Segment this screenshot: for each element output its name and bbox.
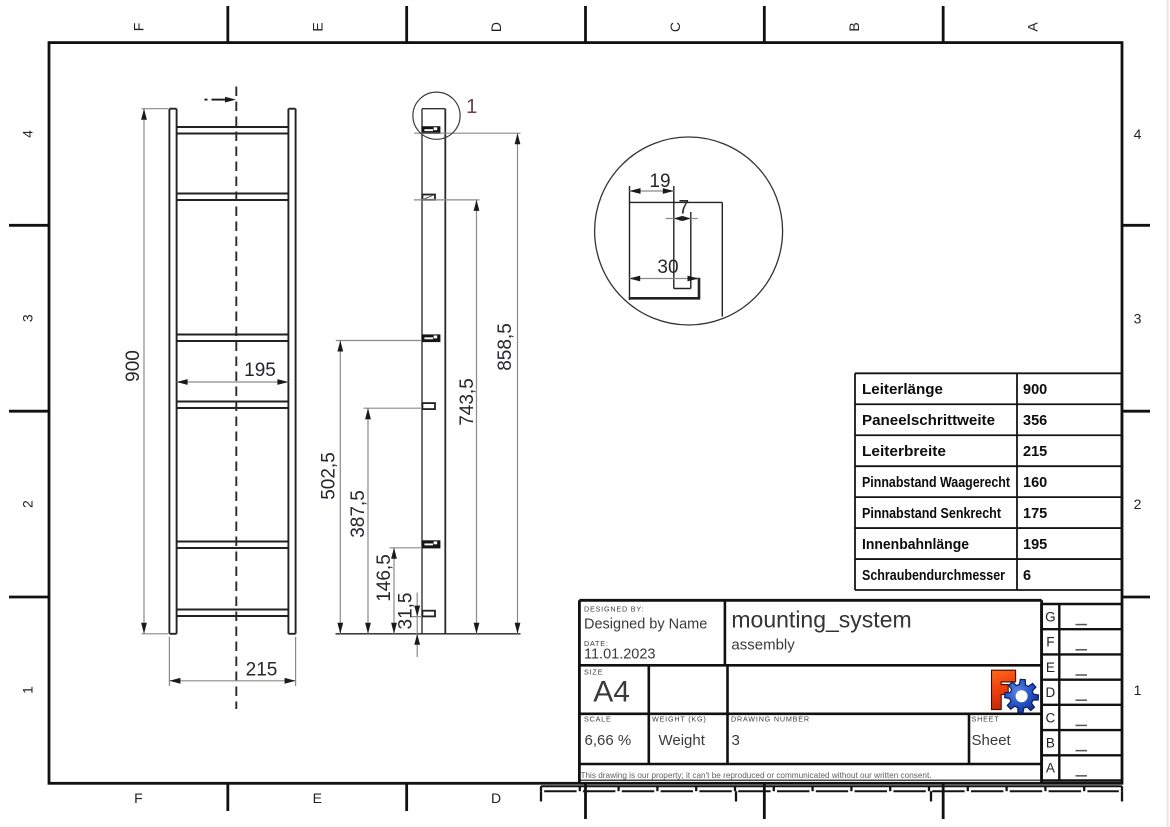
svg-text:E: E	[309, 22, 325, 31]
svg-text:1: 1	[1134, 682, 1142, 698]
svg-text:Leiterbreite: Leiterbreite	[862, 443, 946, 460]
svg-text:31,5: 31,5	[396, 593, 417, 630]
svg-text:7: 7	[679, 198, 690, 219]
svg-text:146,5: 146,5	[374, 554, 395, 602]
svg-text:E: E	[313, 790, 322, 806]
svg-text:6: 6	[1023, 568, 1031, 584]
svg-text:356: 356	[1023, 413, 1047, 429]
svg-text:DRAWING NUMBER: DRAWING NUMBER	[731, 714, 810, 723]
svg-text:F: F	[134, 790, 143, 806]
svg-text:4: 4	[1134, 126, 1142, 142]
svg-text:Pinnabstand Senkrecht: Pinnabstand Senkrecht	[862, 505, 1001, 522]
svg-text:SCALE: SCALE	[584, 714, 612, 723]
svg-text:900: 900	[123, 350, 144, 382]
svg-text:A: A	[1046, 761, 1055, 776]
svg-text:Designed by Name: Designed by Name	[584, 617, 707, 633]
svg-text:F: F	[130, 23, 146, 32]
svg-text:11.01.2023: 11.01.2023	[584, 647, 656, 663]
svg-text:Innenbahnlänge: Innenbahnlänge	[862, 536, 969, 553]
svg-text:195: 195	[244, 360, 276, 381]
svg-text:215: 215	[1023, 444, 1047, 460]
svg-text:502,5: 502,5	[318, 452, 339, 500]
svg-text:Sheet: Sheet	[972, 732, 1012, 749]
svg-text:175: 175	[1023, 506, 1047, 522]
svg-text:3: 3	[1134, 310, 1142, 326]
svg-text:mounting_system: mounting_system	[731, 606, 911, 632]
svg-text:G: G	[1045, 609, 1056, 624]
svg-text:D: D	[488, 22, 504, 32]
svg-text:C: C	[667, 22, 683, 32]
svg-text:215: 215	[246, 659, 278, 680]
svg-text:This drawing is our property;: This drawing is our property; it can't b…	[581, 770, 932, 780]
svg-text:19: 19	[649, 171, 670, 192]
svg-text:Schraubendurchmesser: Schraubendurchmesser	[862, 567, 1005, 584]
svg-text:1: 1	[20, 686, 36, 694]
svg-text:assembly: assembly	[731, 636, 795, 653]
svg-text:DESIGNED BY:: DESIGNED BY:	[584, 605, 644, 614]
svg-text:160: 160	[1023, 475, 1047, 491]
svg-text:A: A	[1025, 22, 1041, 32]
svg-text:2: 2	[1134, 496, 1142, 512]
svg-text:858,5: 858,5	[495, 323, 516, 371]
svg-text:2: 2	[20, 500, 36, 508]
svg-text:E: E	[1046, 660, 1055, 675]
svg-text:A4: A4	[593, 676, 630, 709]
svg-text:743,5: 743,5	[457, 378, 478, 426]
svg-text:Weight: Weight	[659, 732, 706, 749]
svg-text:Pinnabstand Waagerecht: Pinnabstand Waagerecht	[862, 474, 1010, 491]
svg-text:Leiterlänge: Leiterlänge	[862, 381, 943, 398]
svg-text:3: 3	[732, 732, 740, 749]
svg-text:1: 1	[466, 96, 477, 118]
svg-text:F: F	[1046, 635, 1054, 650]
svg-text:D: D	[491, 790, 501, 806]
svg-text:195: 195	[1023, 537, 1047, 553]
svg-text:B: B	[1046, 735, 1055, 750]
svg-text:SHEET: SHEET	[972, 714, 1000, 723]
svg-text:4: 4	[20, 130, 36, 138]
svg-text:900: 900	[1023, 382, 1047, 398]
svg-text:3: 3	[20, 314, 36, 322]
svg-text:D: D	[1046, 685, 1056, 700]
svg-text:30: 30	[657, 257, 678, 278]
svg-text:387,5: 387,5	[348, 490, 369, 538]
svg-text:WEIGHT (KG): WEIGHT (KG)	[652, 714, 707, 723]
svg-text:6,66 %: 6,66 %	[585, 732, 632, 749]
svg-text:Paneelschrittweite: Paneelschrittweite	[862, 412, 995, 429]
svg-text:B: B	[846, 22, 862, 31]
svg-text:C: C	[1046, 710, 1056, 725]
